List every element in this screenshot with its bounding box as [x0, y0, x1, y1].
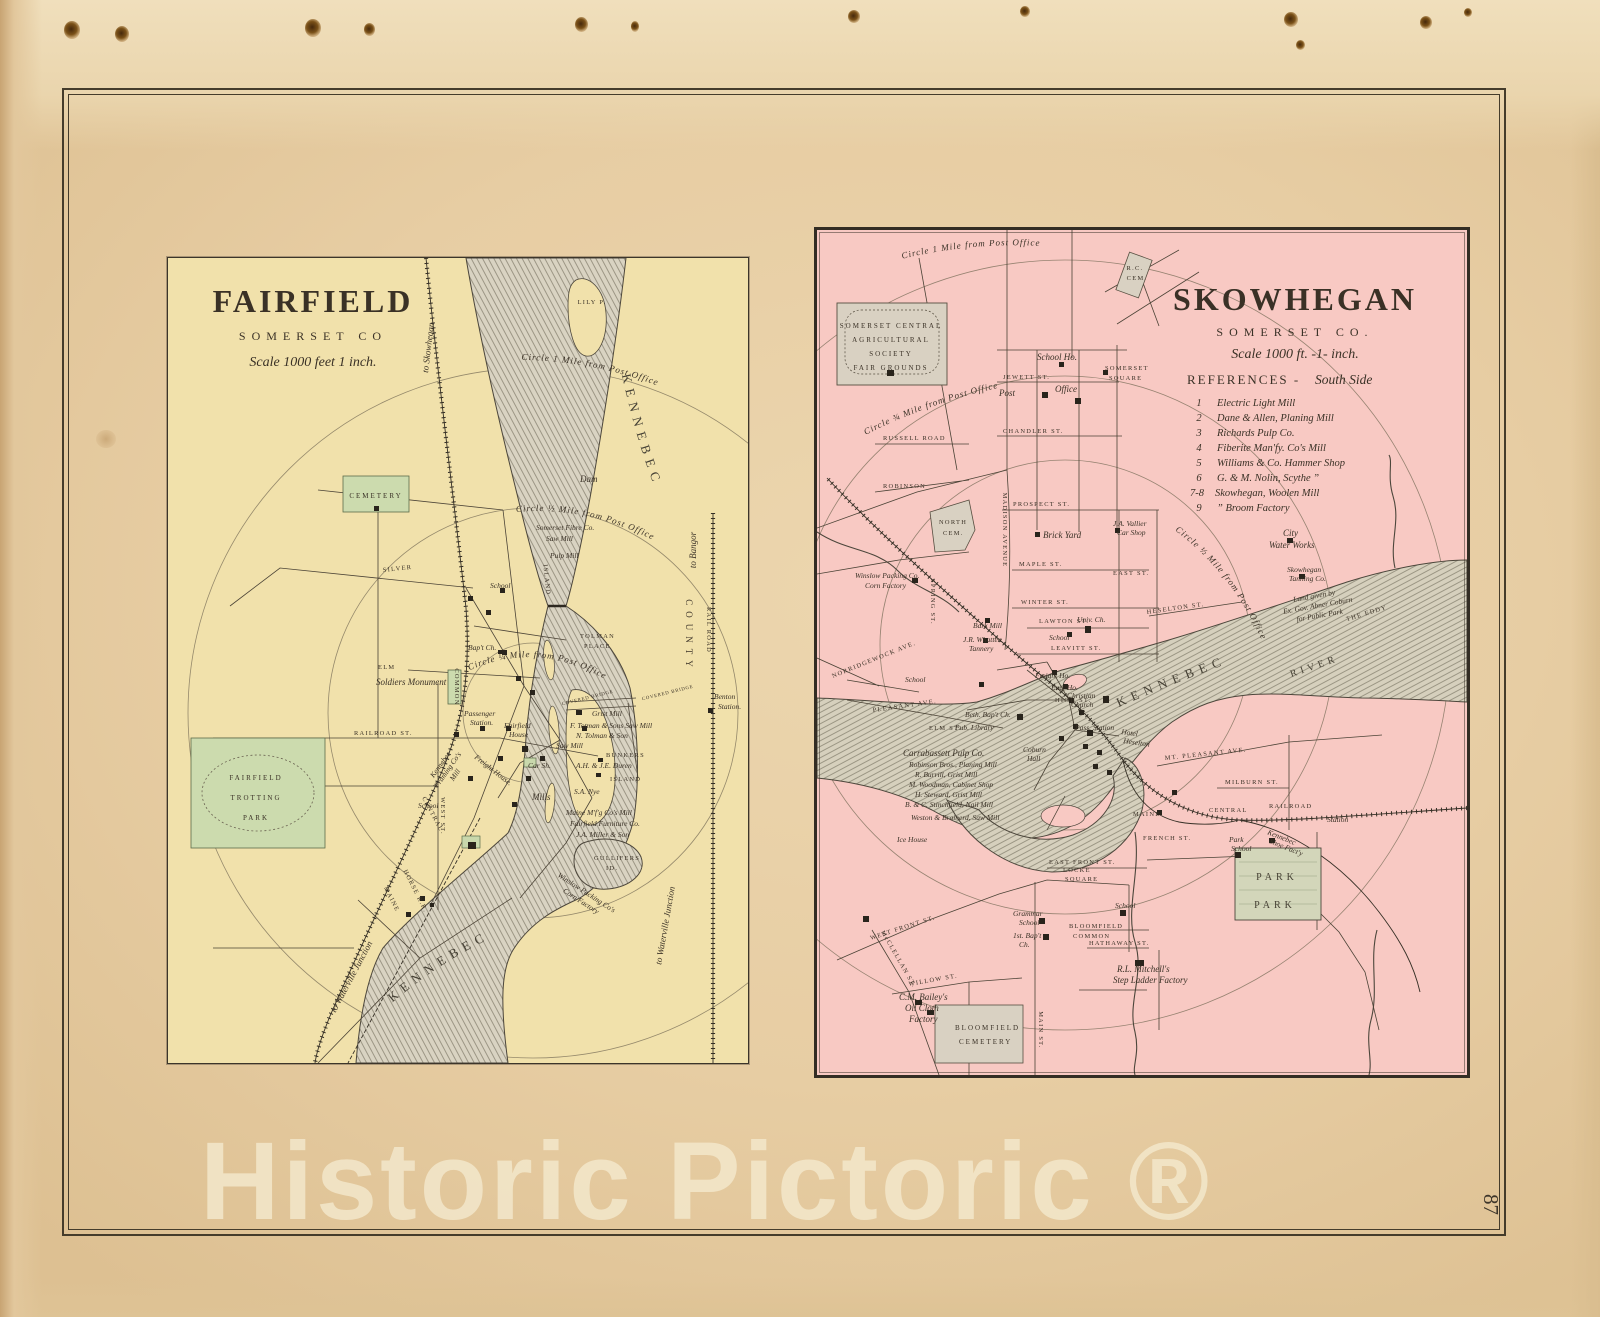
svg-text:Richards Pulp Co.: Richards Pulp Co.	[1216, 428, 1294, 439]
svg-text:6: 6	[1196, 473, 1202, 484]
lbl-horse-rr: HORSE R.R.	[401, 869, 429, 914]
lbl-rail-road: RAIL ROAD	[705, 607, 712, 653]
lbl-freight-house: Freight House.	[472, 752, 514, 788]
lbl-main-st: MAIN ST.	[1037, 1011, 1044, 1049]
lbl-fairgrounds-2: AGRICULTURAL	[852, 336, 930, 344]
lbl-railroad: RAILROAD	[1269, 803, 1312, 810]
svg-text:Skowhegan, Woolen Mill: Skowhegan, Woolen Mill	[1215, 488, 1319, 499]
lbl-robinson: ROBINSON	[883, 483, 926, 490]
lbl-russell: RUSSELL ROAD	[883, 435, 946, 442]
lbl-winslow-1: Winslow Packing Co.	[855, 571, 919, 580]
svg-text:Dane & Allen, Planing Mill: Dane & Allen, Planing Mill	[1216, 413, 1334, 424]
lbl-winslow-2: Corn Factory	[865, 581, 907, 590]
lbl-north-cem-2: CEM.	[943, 530, 964, 537]
lbl-bailey-1: C.M. Bailey's	[899, 992, 948, 1002]
skowhegan-circle-34mile-label: Circle ¾ Mile from Post Office	[862, 380, 999, 437]
lbl-car-shop: Car Sh.	[528, 761, 551, 770]
lbl-leavitt: LEAVITT ST.	[1051, 645, 1102, 652]
lbl-tolman-place: TOLMAN	[580, 633, 615, 640]
lbl-high: HIGH ST.	[1055, 697, 1092, 704]
lbl-kennebec-framing: Kennebec Framing Co's Mill	[424, 745, 470, 795]
paper-hole	[305, 19, 321, 37]
kennebec-river-skowhegan	[817, 560, 1467, 872]
lbl-office: Office	[1055, 384, 1077, 394]
lbl-west-front: WEST FRONT ST.	[869, 914, 936, 942]
watermark: Historic Pictoric ®	[200, 1118, 1212, 1245]
lbl-lily-pond: LILY P.	[578, 299, 607, 306]
lbl-fairfield-house2: House	[508, 730, 529, 739]
paper-hole	[631, 21, 639, 32]
lbl-duren: A.H. & J.E. Duren	[575, 761, 632, 770]
skowhegan-circle-1mile-label: Circle 1 Mile from Post Office	[900, 237, 1040, 261]
lbl-hathaway: HATHAWAY ST.	[1089, 940, 1150, 947]
references-side: South Side	[1315, 372, 1372, 387]
lbl-tolman-son: N. Tolman & Son	[575, 731, 628, 740]
lbl-trotting-3: PARK	[243, 814, 269, 822]
svg-text:1: 1	[1196, 398, 1201, 409]
lbl-north-cem-1: NORTH	[939, 519, 967, 526]
references-heading: REFERENCES -	[1187, 372, 1300, 387]
lbl-benton-station: Station.	[718, 702, 741, 711]
lbl-school-c: School	[1049, 633, 1069, 642]
lbl-vallier-2: Car Shop	[1117, 528, 1146, 537]
lbl-norridgewock: NORRIDGEWOCK AVE.	[831, 640, 917, 680]
svg-text:7-8: 7-8	[1190, 488, 1205, 499]
lbl-tolman-place2: PLACE	[584, 643, 611, 650]
lbl-univ-ch: Univ. Ch.	[1077, 615, 1106, 624]
lbl-mitchell-2: Step Ladder Factory	[1113, 975, 1188, 985]
lbl-maple: MAPLE ST.	[1019, 561, 1063, 568]
lbl-fairfield-house: Fairfield	[503, 721, 531, 730]
plate-border: FAIRFIELD SOMERSET CO Scale 1000 feet 1 …	[62, 88, 1506, 1236]
lbl-maine-rr: MAINE	[382, 885, 401, 913]
lbl-heselton: HESELTON ST.	[1146, 601, 1205, 616]
lbl-city-ww-2: Water Works	[1269, 540, 1315, 550]
lbl-spring: SPRING ST.	[929, 579, 936, 625]
fairfield-title: FAIRFIELD	[213, 283, 414, 319]
page-number: 87	[1478, 1194, 1503, 1215]
lbl-chandler: CHANDLER ST.	[1003, 428, 1064, 435]
lbl-park-school-2: School	[1231, 844, 1251, 853]
lbl-beth: Beth. Bap't Ch.	[965, 710, 1011, 719]
lbl-mcclellan: McCLELLAN ST.	[879, 929, 917, 989]
lbl-central: CENTRAL	[1209, 807, 1248, 814]
lbl-ice-house: Ice House	[896, 835, 928, 844]
paper-hole	[1420, 16, 1432, 29]
lbl-bapt-2: Ch.	[1019, 940, 1030, 949]
lbl-bloom-common-2: COMMON	[1073, 933, 1110, 940]
lbl-trotting-1: FAIRFIELD	[229, 774, 282, 782]
southeast-brook	[1369, 930, 1377, 1075]
lbl-somerset-square-1: SOMERSET	[1105, 365, 1149, 372]
lbl-tanning-1: Skowhegan	[1287, 565, 1321, 574]
lbl-passenger: Passenger	[463, 709, 495, 718]
paper-hole	[575, 17, 588, 32]
lbl-pulp-mill: Pulp Mill	[549, 551, 579, 560]
kennebec-label-upper: KENNEBEC	[619, 372, 666, 488]
lbl-rc-cem-1: R.C.	[1127, 265, 1144, 272]
lbl-vallier-1: J.A. Vallier	[1113, 519, 1147, 528]
fairfield-map-panel: FAIRFIELD SOMERSET CO Scale 1000 feet 1 …	[167, 257, 749, 1064]
bloomfield-cemetery	[935, 1005, 1023, 1063]
fairfield-subtitle: SOMERSET CO	[239, 329, 387, 343]
svg-text:3: 3	[1195, 428, 1201, 439]
north-cemetery	[930, 500, 975, 552]
lbl-covered-bridge-2: COVERED BRIDGE	[642, 685, 695, 703]
lbl-bapt-church: Bap't Ch.	[468, 643, 496, 652]
lbl-to-bangor: to Bangor	[688, 531, 698, 568]
lbl-mills: Mills	[531, 792, 551, 802]
lbl-soldiers-monument: Soldiers Monument	[376, 677, 447, 687]
paper-hole	[1284, 12, 1298, 27]
skowhegan-map: SKOWHEGAN SOMERSET CO. Scale 1000 ft. -1…	[817, 230, 1467, 1075]
lbl-french: FRENCH ST.	[1143, 835, 1191, 842]
lbl-somerset-fibre: Somerset Fibre Co.	[536, 523, 594, 532]
lbl-city-ww-1: City	[1283, 528, 1298, 538]
lbl-bunkers-island: ISLAND	[610, 776, 641, 783]
skowhegan-scale: Scale 1000 ft. -1- inch.	[1231, 347, 1359, 362]
lbl-elm-st: ELM ST.	[929, 725, 962, 732]
lbl-trotting-2: TROTTING	[231, 794, 282, 802]
lbl-maine-mfg: Maine M'f'g Co's Mill	[565, 808, 632, 817]
lbl-bloom-cem-2: CEMETERY	[959, 1038, 1012, 1046]
south-brook	[1132, 832, 1138, 1075]
north-brook	[1389, 455, 1396, 568]
lbl-bloom-cem-1: BLOOMFIELD	[955, 1024, 1020, 1032]
references-list: REFERENCES - South Side 1 Electric Light…	[1187, 372, 1372, 514]
lbl-carr-2: R. Burrill, Grist Mill	[914, 770, 977, 779]
lbl-fairgrounds-3: SOCIETY	[869, 350, 913, 358]
lbl-benton: Benton	[714, 692, 735, 701]
lbl-carr-5: B. & C. Stinchfield, Nail Mill	[905, 800, 993, 809]
atlas-page: FAIRFIELD SOMERSET CO Scale 1000 feet 1 …	[0, 0, 1600, 1317]
skowhegan-map-panel: SKOWHEGAN SOMERSET CO. Scale 1000 ft. -1…	[814, 227, 1470, 1078]
lbl-maine: MAINE	[1133, 811, 1160, 818]
paper-hole	[1296, 40, 1305, 50]
paper-hole	[1020, 6, 1030, 17]
lbl-county: COUNTY	[684, 599, 694, 673]
lbl-park-2: PARK	[1254, 900, 1296, 911]
svg-text:5: 5	[1196, 458, 1201, 469]
lbl-east-front: EAST FRONT ST.	[1049, 859, 1116, 866]
lbl-post: Post	[998, 388, 1016, 398]
river-island	[1041, 805, 1085, 827]
lbl-fairgrounds-1: SOMERSET CENTRAL	[840, 322, 942, 330]
lbl-coburn-1: Coburn	[1023, 745, 1046, 754]
lbl-whatten-1: J.R. Whatten	[963, 635, 1002, 644]
lbl-bapt-1: 1st. Bap't	[1013, 931, 1042, 940]
lbl-milburn: MILBURN ST.	[1225, 779, 1279, 786]
paper-hole	[364, 23, 375, 36]
lbl-mitchell-1: R.L. Mitchell's	[1116, 964, 1170, 974]
lbl-prospect: PROSPECT ST.	[1013, 501, 1070, 508]
fairfield-map: FAIRFIELD SOMERSET CO Scale 1000 feet 1 …	[168, 258, 748, 1063]
lbl-freight-ho: Freight Ho.	[1034, 671, 1070, 680]
svg-text:” Broom Factory: ” Broom Factory	[1217, 503, 1290, 514]
lbl-bloom-common-1: BLOOMFIELD	[1069, 923, 1123, 930]
lbl-gullifers-id: ID.	[606, 865, 618, 872]
svg-text:2: 2	[1196, 413, 1202, 424]
lbl-madison-ave: MADISON AVENUE	[1001, 493, 1008, 568]
trotting-park-grounds	[191, 738, 325, 848]
lbl-tanning-2: Tanning Co.	[1289, 574, 1326, 583]
lbl-to-waterville-e: to Waterville Junction	[653, 885, 677, 965]
lbl-bark-mill: Bark Mill	[973, 621, 1002, 630]
skowhegan-subtitle: SOMERSET CO.	[1216, 325, 1373, 339]
lbl-locke-2: SQUARE	[1065, 876, 1098, 883]
lbl-east: EAST ST.	[1113, 570, 1149, 577]
lbl-school-n: School	[490, 581, 510, 590]
lbl-carr-1: Robinson Bros., Planing Mill	[908, 760, 997, 769]
lbl-carrabassett: Carrabassett Pulp Co.	[903, 748, 984, 758]
lbl-carr-3: M. Woodman, Cabinet Shop	[908, 780, 993, 789]
lbl-grammar-1: Grammar	[1013, 909, 1043, 918]
lbl-common: COMMON	[453, 668, 460, 705]
lbl-railroad-st: RAILROAD ST.	[354, 730, 413, 737]
lbl-brick-yard: Brick Yard	[1043, 530, 1082, 540]
lbl-silver: SILVER	[382, 564, 412, 574]
lbl-bailey-3: Factory	[908, 1014, 938, 1024]
lbl-bunkers: BUNKERS	[606, 752, 645, 759]
svg-text:Electric Light Mill: Electric Light Mill	[1216, 398, 1295, 409]
lbl-jewett: JEWETT ST.	[1003, 374, 1050, 381]
lbl-locke-1: LOCKE	[1063, 867, 1091, 874]
lbl-school-s: School	[418, 801, 438, 810]
lbl-whatten-2: Tannery	[969, 644, 994, 653]
lbl-totman: F. Totman & Sons Saw Mill	[569, 721, 652, 730]
lbl-weston: Weston & Brainerd, Saw Mill	[911, 813, 999, 822]
lbl-saw-mill-n: Saw Mill	[546, 534, 573, 543]
lbl-mt-pleasant: MT. PLEASANT AVE.	[1164, 746, 1246, 762]
lbl-school-ho: School Ho.	[1037, 352, 1077, 362]
lbl-to-skowhegan: to Skowhegan	[420, 322, 436, 374]
lbl-station: Station	[1327, 815, 1349, 824]
lbl-miller: J.A. Miller & Son	[576, 830, 629, 839]
lbl-passenger2: Station.	[470, 718, 493, 727]
lbl-school-s: School	[1115, 901, 1135, 910]
lbl-grist-mill: Grist Mill	[592, 709, 622, 718]
lbl-saw-mill-s: Saw Mill	[556, 741, 583, 750]
lbl-park-school-1: Park	[1228, 835, 1244, 844]
lbl-furniture: Fairfield Furniture Co.	[569, 819, 640, 828]
lbl-cemetery: CEMETERY	[349, 492, 402, 500]
lbl-elm: ELM	[378, 664, 395, 671]
skowhegan-title: SKOWHEGAN	[1173, 281, 1417, 317]
paper-hole	[848, 10, 860, 23]
svg-text:Fiberite Man'fy. Co's Mill: Fiberite Man'fy. Co's Mill	[1216, 443, 1326, 454]
lbl-gullifers: GULLIFERS	[594, 855, 640, 862]
lbl-park-1: PARK	[1256, 872, 1298, 883]
lbl-winter: WINTER ST.	[1021, 599, 1069, 606]
lbl-fairgrounds-4: FAIR GROUNDS	[853, 364, 928, 372]
paper-hole	[115, 26, 129, 42]
paper-hole	[64, 21, 80, 39]
fairfield-scale: Scale 1000 feet 1 inch.	[249, 355, 376, 370]
svg-text:G. & M. Nolin, Scythe ”: G. & M. Nolin, Scythe ”	[1217, 473, 1319, 484]
lbl-somerset-square-2: SQUARE	[1109, 375, 1142, 382]
lbl-carr-4: H. Steward, Grist Mill	[914, 790, 982, 799]
lbl-pass-station: Pass. Station	[1074, 723, 1114, 732]
lbl-grammar-2: School	[1019, 918, 1039, 927]
svg-text:4: 4	[1196, 443, 1202, 454]
svg-text:Williams & Co. Hammer Shop: Williams & Co. Hammer Shop	[1217, 458, 1345, 469]
lbl-bailey-2: Oil Cloth	[905, 1003, 939, 1013]
lbl-rc-cem-2: CEM.	[1127, 275, 1148, 282]
svg-text:9: 9	[1196, 503, 1202, 514]
paper-hole	[1464, 8, 1472, 17]
lbl-nye: S.A. Nye	[574, 787, 600, 796]
lbl-dam: Dam	[579, 474, 598, 484]
lbl-coburn-2: Hall	[1026, 754, 1040, 763]
lbl-school-w: School	[905, 675, 925, 684]
